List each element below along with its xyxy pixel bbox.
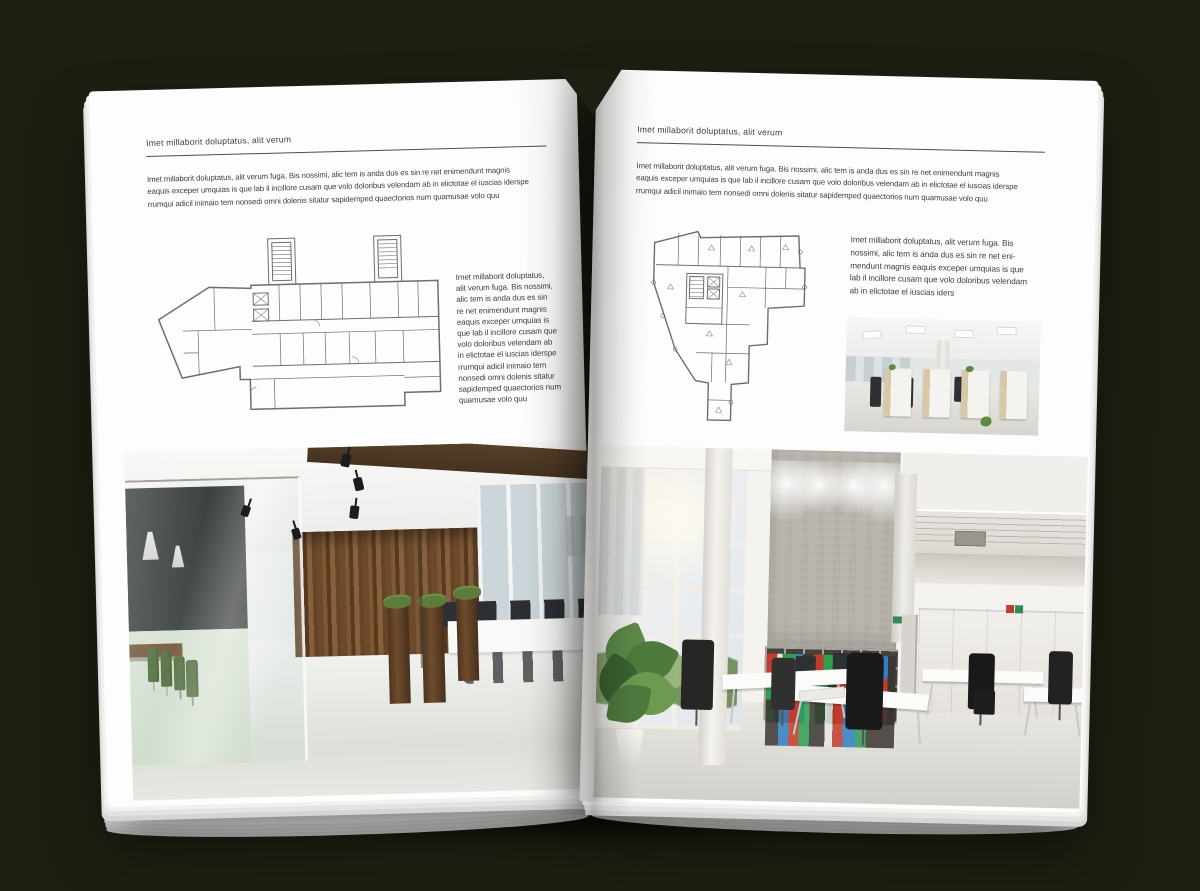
ceiling-light (998, 328, 1016, 334)
left-page-title: Imet millaborit doluptatus, alit verum (146, 134, 291, 148)
safety-signs (1006, 605, 1014, 614)
right-header-rule (637, 142, 1045, 153)
right-large-office-photo (594, 445, 1088, 808)
balcony-rail (901, 509, 1087, 559)
right-page: Imet millaborit doluptatus, alit verum I… (579, 69, 1098, 813)
city-view (566, 516, 587, 556)
ceiling-light (864, 331, 882, 338)
storage-cabinet (1000, 371, 1028, 420)
right-page-title: Imet millaborit doluptatus, alit verum (637, 124, 782, 137)
glass-pane-reflection (125, 476, 308, 766)
ceiling-light (907, 327, 925, 333)
left-floor-plan (151, 228, 448, 418)
storage-cabinet (922, 369, 950, 418)
left-office-photo (124, 441, 595, 801)
downlight-glows (770, 460, 901, 540)
air-vent (954, 531, 986, 546)
task-chair (845, 652, 883, 730)
right-floor-plan (636, 220, 837, 430)
city-view (598, 467, 645, 616)
left-intro-paragraph: Imet millaborit doluptatus, alit verum f… (147, 164, 529, 211)
right-intro-paragraph: Imet millaborit doluptatus, alit verum f… (636, 160, 1018, 206)
task-chair (681, 639, 715, 710)
plant-pot (613, 729, 647, 764)
ceiling-light (955, 331, 973, 337)
mezzanine-underside (900, 555, 1085, 587)
track-spotlight (349, 505, 359, 519)
task-chair (870, 377, 881, 407)
right-plan-side-text: Imet millaborit doluptatus, alit verum f… (849, 233, 1028, 301)
potted-plant (594, 621, 680, 764)
task-chair (771, 657, 797, 710)
task-chair-row (462, 650, 583, 684)
wooden-planter (422, 604, 446, 702)
right-small-office-photo (844, 317, 1041, 436)
task-chair (1048, 651, 1074, 704)
waste-bin (974, 690, 995, 715)
left-plan-side-text: Imet millaborit doluptatus, alit verum f… (456, 269, 562, 406)
left-page: Imet millaborit doluptatus, alit verum I… (89, 79, 596, 808)
wooden-planter (387, 605, 411, 703)
magazine-spread: Imet millaborit doluptatus, alit verum I… (86, 55, 1102, 827)
glass-meeting-room (125, 476, 308, 766)
left-header-rule (146, 146, 546, 157)
wooden-planter (456, 597, 479, 681)
exit-sign (893, 616, 902, 623)
storage-cabinet (883, 368, 911, 417)
mezzanine (902, 453, 1088, 514)
storage-cabinet (961, 370, 989, 419)
